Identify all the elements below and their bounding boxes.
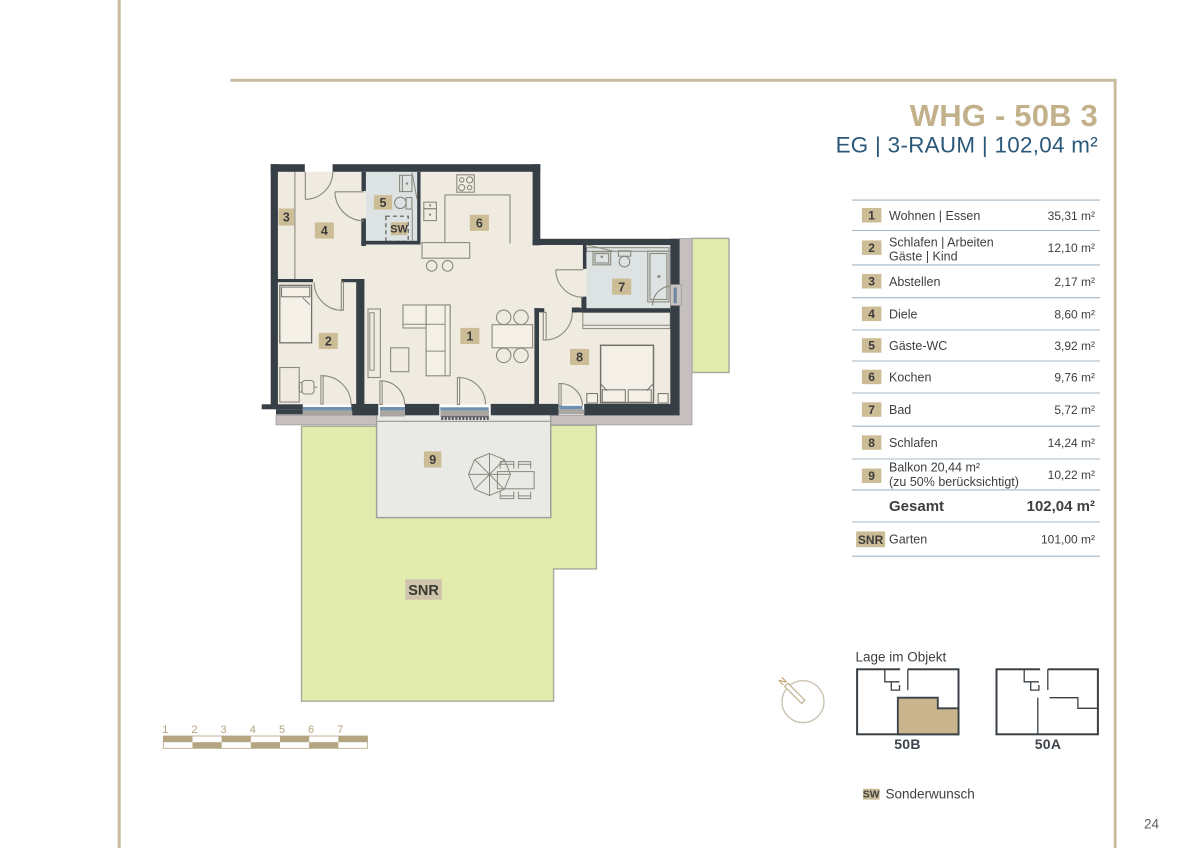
svg-text:SW: SW	[390, 223, 408, 235]
svg-text:7: 7	[618, 280, 625, 294]
svg-text:1: 1	[868, 209, 875, 223]
svg-text:4: 4	[868, 307, 875, 321]
svg-text:2,17 m²: 2,17 m²	[1054, 275, 1095, 289]
svg-text:Wohnen | Essen: Wohnen | Essen	[889, 209, 980, 223]
svg-text:1: 1	[162, 724, 168, 736]
svg-text:2: 2	[191, 724, 197, 736]
svg-text:101,00 m²: 101,00 m²	[1041, 532, 1095, 546]
svg-text:6: 6	[868, 370, 875, 384]
svg-text:7: 7	[337, 724, 343, 736]
svg-text:2: 2	[325, 335, 332, 349]
svg-text:9,76 m²: 9,76 m²	[1054, 371, 1095, 385]
svg-text:8,60 m²: 8,60 m²	[1054, 307, 1095, 321]
svg-text:Bad: Bad	[889, 403, 911, 417]
svg-text:Schlafen | Arbeiten: Schlafen | Arbeiten	[889, 236, 994, 250]
svg-text:3: 3	[283, 211, 290, 225]
svg-text:24: 24	[1144, 817, 1160, 832]
svg-text:3,92 m²: 3,92 m²	[1054, 339, 1095, 353]
svg-text:Sonderwunsch: Sonderwunsch	[886, 787, 975, 802]
svg-text:6: 6	[308, 724, 314, 736]
svg-text:(zu 50% berücksichtigt): (zu 50% berücksichtigt)	[889, 475, 1019, 489]
svg-text:3: 3	[868, 275, 875, 289]
svg-text:50B: 50B	[894, 736, 921, 752]
svg-text:3: 3	[221, 724, 227, 736]
svg-text:6: 6	[476, 217, 483, 231]
svg-text:14,24 m²: 14,24 m²	[1048, 436, 1095, 450]
svg-text:10,22 m²: 10,22 m²	[1048, 468, 1095, 482]
svg-text:Garten: Garten	[889, 532, 927, 546]
svg-text:9: 9	[429, 453, 436, 467]
svg-text:5,72 m²: 5,72 m²	[1054, 403, 1095, 417]
svg-text:4: 4	[321, 224, 328, 238]
svg-text:4: 4	[250, 724, 256, 736]
svg-text:5: 5	[868, 339, 875, 353]
svg-text:SNR: SNR	[408, 583, 439, 599]
svg-text:EG | 3-RAUM | 102,04 m²: EG | 3-RAUM | 102,04 m²	[836, 133, 1099, 158]
svg-text:12,10 m²: 12,10 m²	[1048, 241, 1095, 255]
svg-text:Gesamt: Gesamt	[889, 498, 944, 515]
svg-text:Gäste | Kind: Gäste | Kind	[889, 250, 958, 264]
svg-text:SNR: SNR	[858, 533, 884, 547]
svg-text:102,04 m²: 102,04 m²	[1027, 498, 1095, 515]
svg-text:5: 5	[380, 196, 387, 210]
svg-text:Lage im Objekt: Lage im Objekt	[856, 650, 947, 665]
svg-text:8: 8	[576, 351, 583, 365]
svg-text:1: 1	[466, 330, 473, 344]
svg-text:Diele: Diele	[889, 307, 918, 321]
svg-text:5: 5	[279, 724, 285, 736]
svg-text:35,31 m²: 35,31 m²	[1048, 209, 1095, 223]
svg-text:Balkon 20,44 m²: Balkon 20,44 m²	[889, 461, 980, 475]
svg-text:Schlafen: Schlafen	[889, 436, 938, 450]
svg-text:Kochen: Kochen	[889, 371, 931, 385]
svg-text:SW: SW	[863, 789, 880, 801]
svg-text:9: 9	[868, 469, 875, 483]
svg-text:Abstellen: Abstellen	[889, 275, 940, 289]
svg-text:2: 2	[868, 241, 875, 255]
svg-text:50A: 50A	[1035, 736, 1062, 752]
svg-text:WHG - 50B 3: WHG - 50B 3	[910, 98, 1098, 133]
svg-text:Gäste-WC: Gäste-WC	[889, 339, 947, 353]
svg-text:7: 7	[868, 403, 875, 417]
svg-text:8: 8	[868, 436, 875, 450]
